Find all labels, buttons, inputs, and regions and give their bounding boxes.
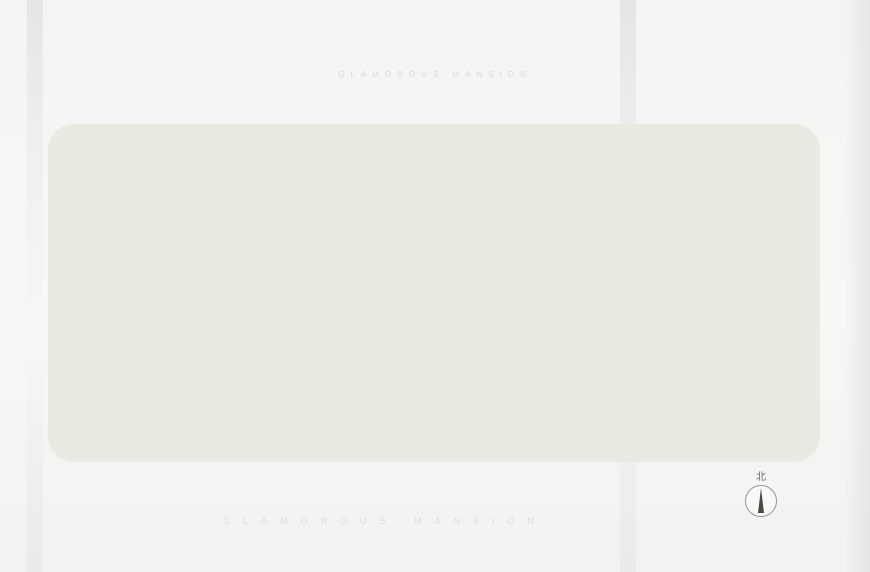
compass-needle-icon — [758, 488, 764, 513]
compass-north-label: 北 — [744, 468, 778, 483]
page-subtitle: GLAMOROUS MANSION — [0, 70, 870, 79]
compass-circle — [745, 485, 777, 517]
site-plan — [48, 124, 820, 462]
compass: 北 — [744, 468, 778, 517]
right-edge-shade — [844, 0, 870, 572]
watermark-text: GLAMOROUS MANSION — [150, 516, 620, 526]
left-gradient-strip — [27, 0, 43, 572]
